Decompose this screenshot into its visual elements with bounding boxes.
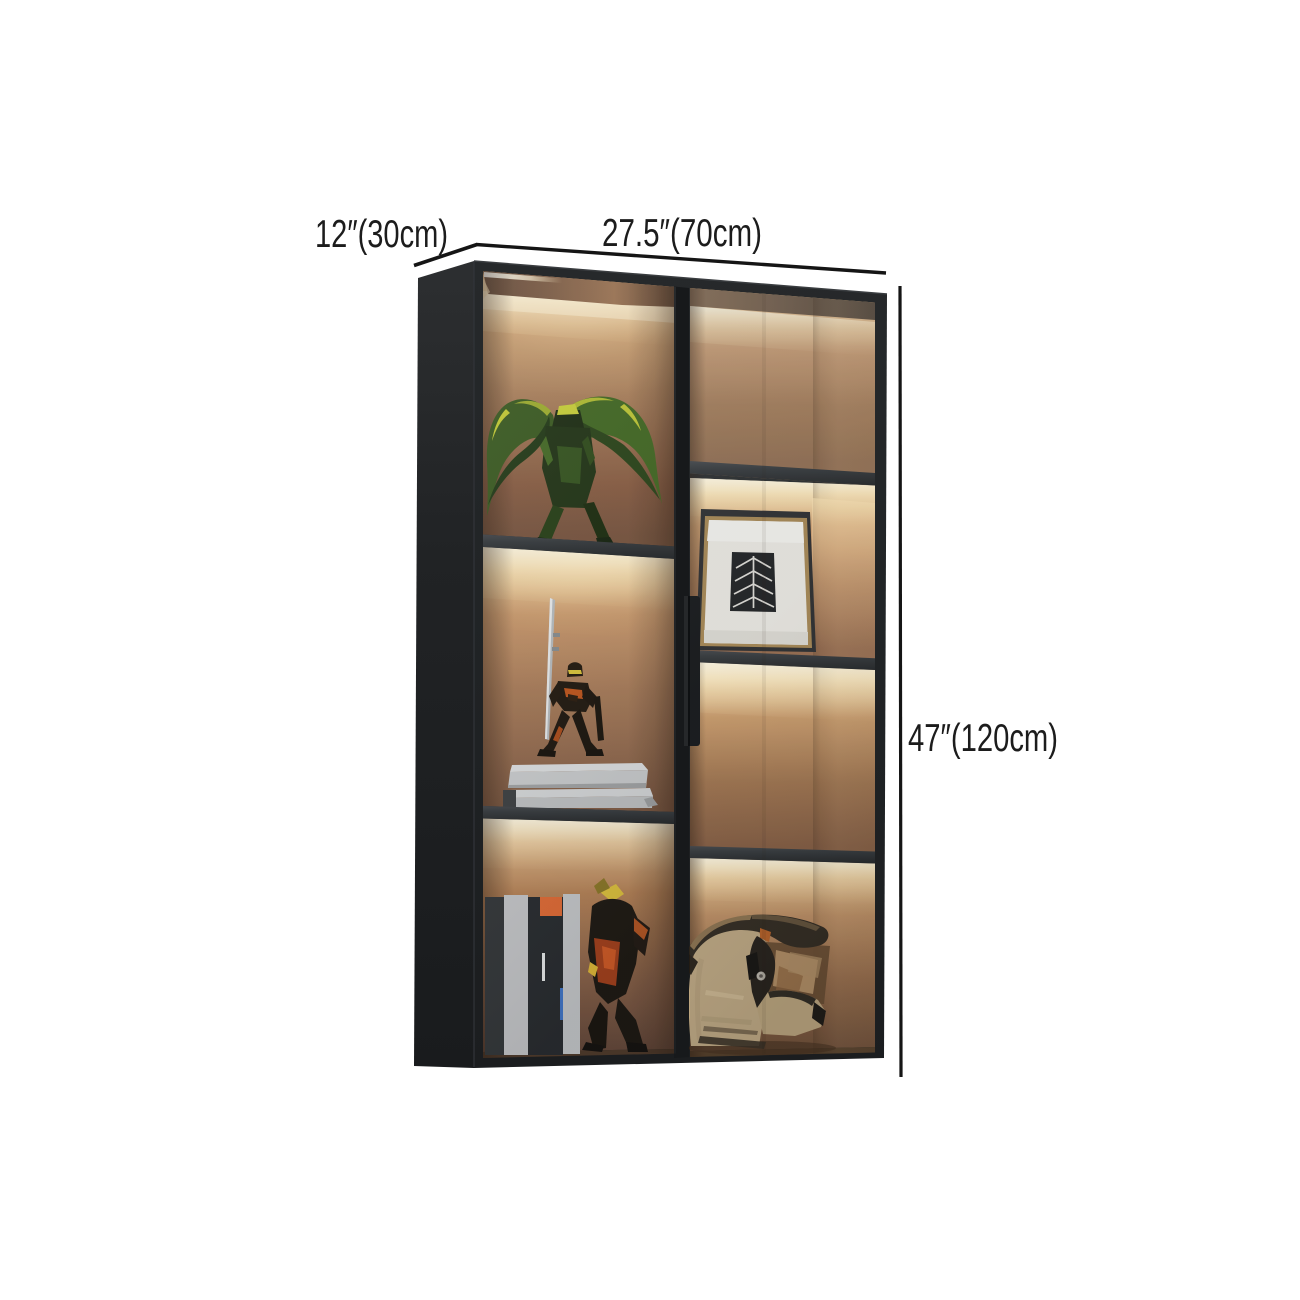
svg-text:12″(30cm): 12″(30cm) [315,213,448,256]
svg-text:27.5″(70cm): 27.5″(70cm) [602,212,762,255]
svg-text:47″(120cm): 47″(120cm) [908,717,1058,760]
